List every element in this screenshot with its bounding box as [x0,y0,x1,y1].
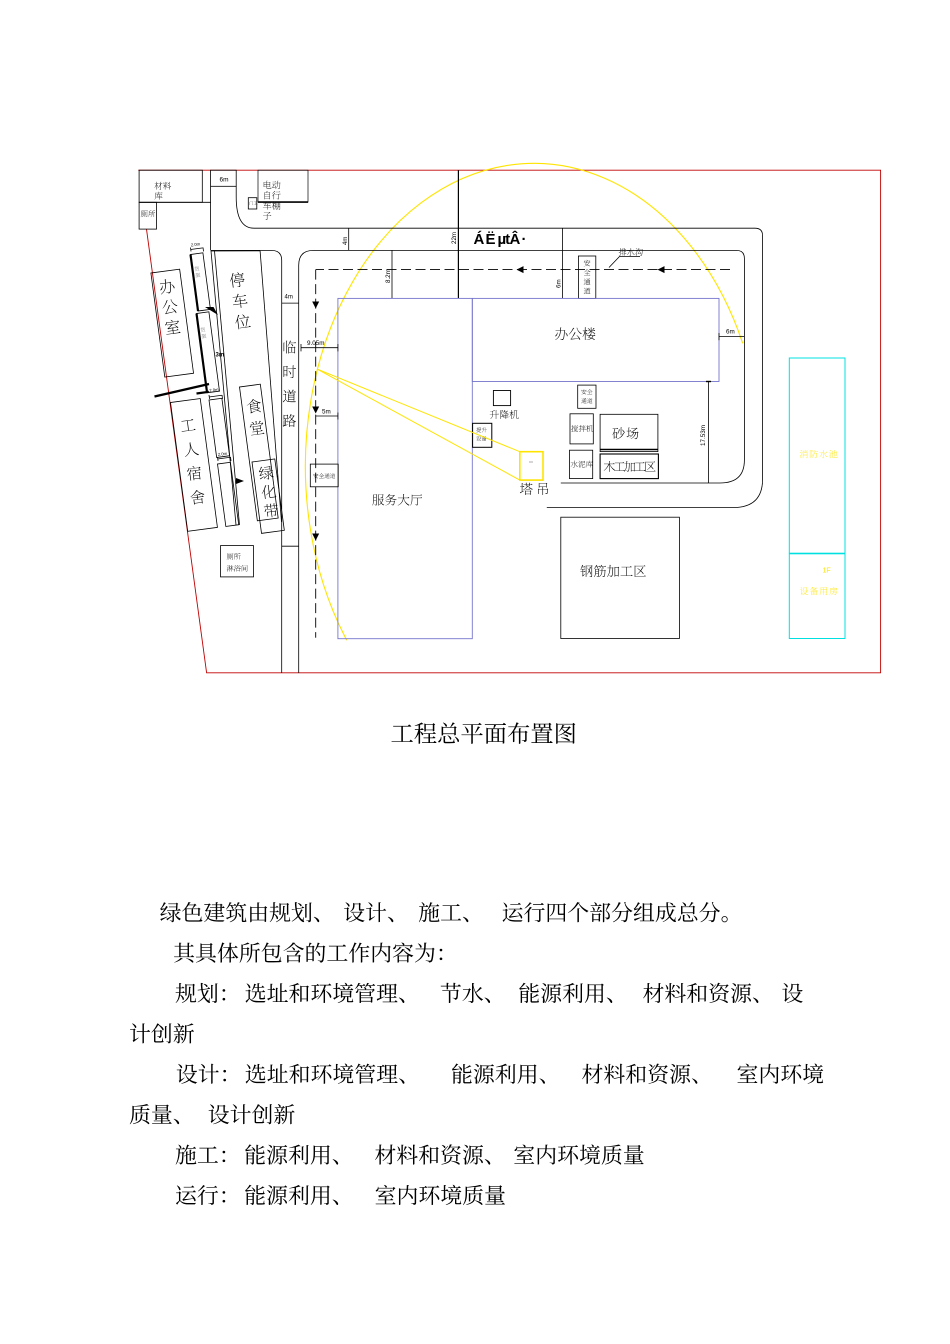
svg-text:6m: 6m [556,279,563,288]
svg-text:8.2m: 8.2m [385,269,392,283]
svg-text:·: · [522,231,527,248]
svg-text:Ë: Ë [486,231,496,248]
svg-text:5m: 5m [322,409,331,416]
svg-text:9.05m: 9.05m [307,340,325,347]
svg-text:4m: 4m [343,237,349,245]
svg-text:Â: Â [510,230,521,248]
svg-text:1F: 1F [823,568,831,575]
svg-text:4m: 4m [285,295,293,301]
svg-text:22m: 22m [451,232,458,244]
svg-text:17.53m: 17.53m [700,425,707,446]
svg-text:6m: 6m [220,177,229,184]
svg-text:6m: 6m [726,329,735,336]
svg-text:3m: 3m [216,353,225,359]
svg-text:Á: Á [474,231,485,248]
svg-text:µt: µt [498,231,511,248]
svg-text:2.0m: 2.0m [209,387,219,393]
svg-text:2.0m: 2.0m [190,241,200,247]
